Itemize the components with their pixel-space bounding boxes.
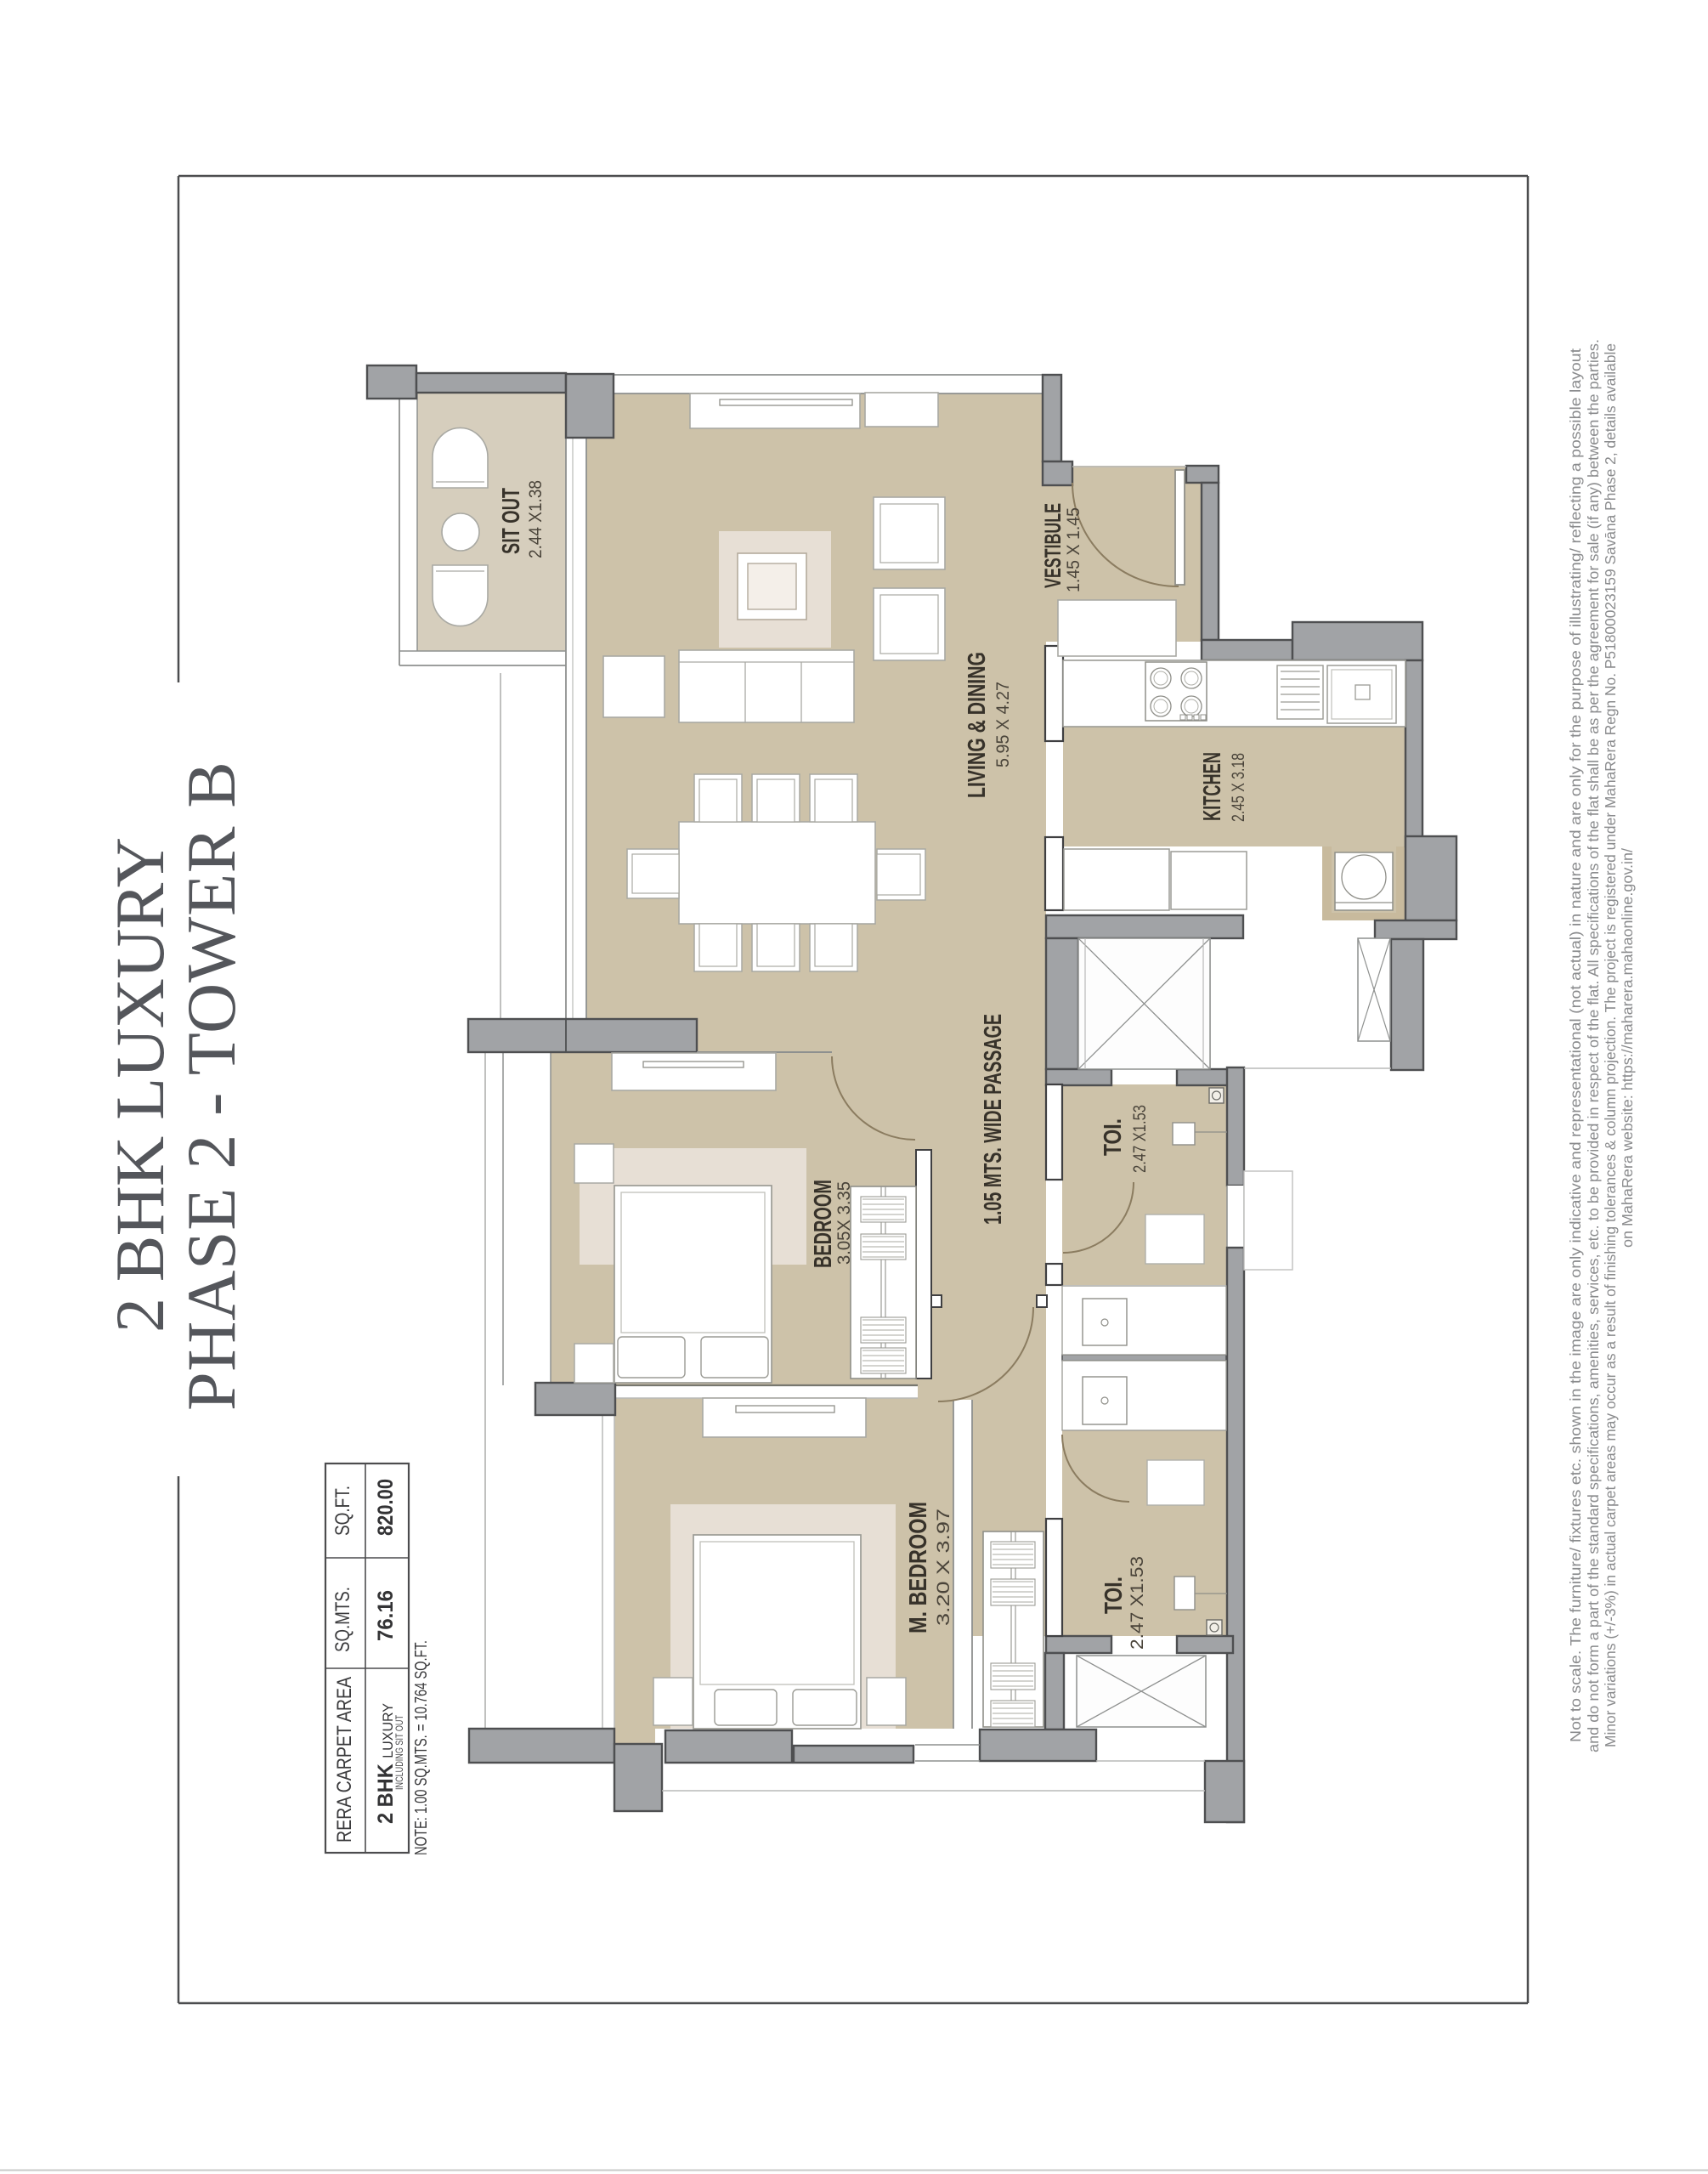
svg-text:3.05X 3.35: 3.05X 3.35 xyxy=(834,1181,854,1265)
svg-text:2 BHK LUXURY: 2 BHK LUXURY xyxy=(101,837,178,1333)
svg-text:2.47 X1.53: 2.47 X1.53 xyxy=(1127,1556,1147,1650)
svg-text:820.00: 820.00 xyxy=(374,1479,398,1536)
svg-text:2.47 X1.53: 2.47 X1.53 xyxy=(1129,1105,1150,1173)
svg-text:3.20 X 3.97: 3.20 X 3.97 xyxy=(933,1509,953,1626)
svg-text:on MahaRera website: https://m: on MahaRera website: https://maharera.ma… xyxy=(1619,848,1636,1248)
svg-text:KITCHEN: KITCHEN xyxy=(1199,752,1226,821)
svg-text:1.45 X 1.45: 1.45 X 1.45 xyxy=(1063,507,1083,592)
svg-text:1.05 MTS. WIDE PASSAGE: 1.05 MTS. WIDE PASSAGE xyxy=(980,1014,1007,1225)
svg-text:2.45 X 3.18: 2.45 X 3.18 xyxy=(1228,753,1248,822)
svg-text:M. BEDROOM: M. BEDROOM xyxy=(905,1502,932,1633)
svg-text:PHASE 2 - TOWER B: PHASE 2 - TOWER B xyxy=(172,761,250,1411)
svg-text:SQ.FT.: SQ.FT. xyxy=(331,1486,354,1536)
svg-text:RERA CARPET AREA: RERA CARPET AREA xyxy=(333,1677,356,1843)
svg-text:TOI.: TOI. xyxy=(1100,1118,1127,1156)
svg-text:76.16: 76.16 xyxy=(374,1590,398,1641)
svg-text:Not to scale. The furniture/ f: Not to scale. The furniture/ fixtures et… xyxy=(1567,348,1584,1742)
svg-text:Minor variations (+/-3%) in ac: Minor variations (+/-3%) in actual carpe… xyxy=(1602,343,1619,1747)
svg-text:SIT OUT: SIT OUT xyxy=(498,488,525,554)
svg-text:NOTE: 1.00 SQ.MTS. = 10.764 SQ: NOTE: 1.00 SQ.MTS. = 10.764 SQ.FT. xyxy=(412,1640,431,1855)
svg-text:INCLUDING SIT OUT: INCLUDING SIT OUT xyxy=(395,1715,405,1790)
svg-text:VESTIBULE: VESTIBULE xyxy=(1040,503,1066,588)
svg-text:LIVING & DINING: LIVING & DINING xyxy=(964,652,991,798)
svg-text:and do not form a part of the: and do not form a part of the standard s… xyxy=(1585,339,1602,1752)
svg-text:2.44 X1.38: 2.44 X1.38 xyxy=(525,480,546,558)
svg-text:TOI.: TOI. xyxy=(1100,1577,1128,1614)
svg-text:SQ.MTS.: SQ.MTS. xyxy=(331,1587,354,1652)
svg-text:5.95 X 4.27: 5.95 X 4.27 xyxy=(993,682,1013,767)
